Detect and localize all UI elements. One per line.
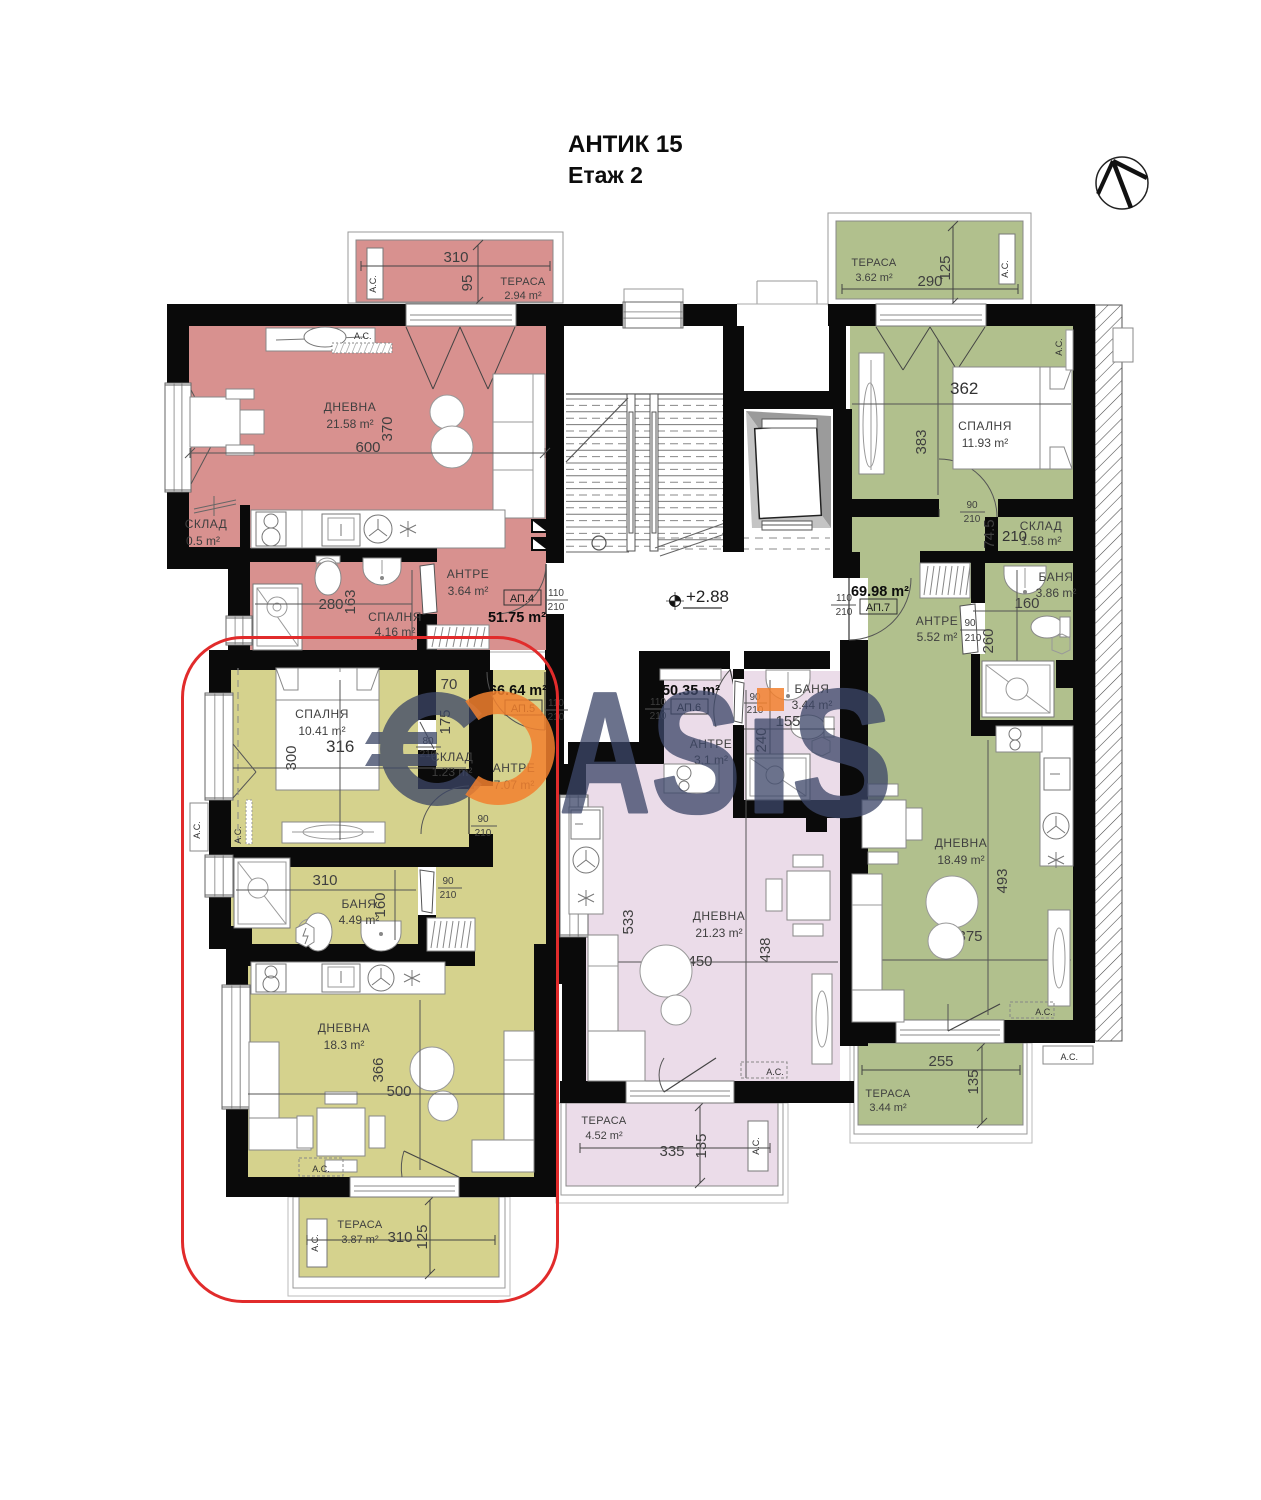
svg-text:500: 500 bbox=[386, 1083, 411, 1100]
svg-text:493: 493 bbox=[994, 868, 1011, 893]
svg-text:160: 160 bbox=[1014, 595, 1039, 612]
svg-text:ДНЕВНА: ДНЕВНА bbox=[318, 1021, 370, 1035]
svg-text:95: 95 bbox=[459, 275, 476, 292]
svg-text:3.62 m²: 3.62 m² bbox=[855, 272, 893, 284]
svg-text:А.С.: А.С. bbox=[192, 821, 202, 839]
svg-text:А.С.: А.С. bbox=[354, 331, 372, 341]
svg-text:ТЕРАСА: ТЕРАСА bbox=[500, 276, 545, 288]
svg-text:90: 90 bbox=[964, 618, 976, 629]
svg-text:0.5 m²: 0.5 m² bbox=[186, 534, 220, 548]
svg-text:АНТИК 15: АНТИК 15 bbox=[568, 131, 683, 158]
svg-text:210: 210 bbox=[964, 514, 981, 525]
svg-text:21.58 m²: 21.58 m² bbox=[326, 417, 373, 431]
svg-text:310: 310 bbox=[443, 249, 468, 266]
svg-text:АНТРЕ: АНТРЕ bbox=[447, 567, 490, 581]
svg-text:125: 125 bbox=[414, 1224, 431, 1249]
svg-text:210: 210 bbox=[475, 828, 492, 839]
svg-text:210: 210 bbox=[836, 607, 853, 618]
svg-text:110: 110 bbox=[548, 588, 564, 599]
svg-text:ТЕРАСА: ТЕРАСА bbox=[581, 1115, 626, 1127]
svg-text:А.С.: А.С. bbox=[766, 1067, 784, 1077]
svg-text:АП.7: АП.7 bbox=[866, 602, 890, 614]
svg-text:1.58 m²: 1.58 m² bbox=[1021, 534, 1062, 548]
svg-text:ТЕРАСА: ТЕРАСА bbox=[851, 257, 896, 269]
svg-text:СПАЛНЯ: СПАЛНЯ bbox=[958, 419, 1012, 433]
svg-text:S: S bbox=[792, 654, 893, 854]
svg-text:СПАЛНЯ: СПАЛНЯ bbox=[295, 707, 349, 721]
svg-text:600: 600 bbox=[355, 439, 380, 456]
svg-text:163: 163 bbox=[342, 589, 359, 614]
svg-text:310: 310 bbox=[312, 872, 337, 889]
svg-text:335: 335 bbox=[659, 1143, 684, 1160]
svg-text:74.5: 74.5 bbox=[981, 519, 998, 548]
svg-text:533: 533 bbox=[620, 909, 637, 934]
svg-text:70: 70 bbox=[441, 676, 458, 693]
svg-text:+2.88: +2.88 bbox=[686, 587, 729, 606]
svg-text:А.С.: А.С. bbox=[1060, 1052, 1078, 1062]
svg-text:ДНЕВНА: ДНЕВНА bbox=[324, 400, 376, 414]
svg-text:ТЕРАСА: ТЕРАСА bbox=[865, 1088, 910, 1100]
svg-text:370: 370 bbox=[379, 416, 396, 441]
svg-text:СПАЛНЯ: СПАЛНЯ bbox=[368, 610, 422, 624]
svg-text:300: 300 bbox=[283, 745, 300, 770]
svg-text:110: 110 bbox=[836, 593, 852, 604]
svg-text:СКЛАД: СКЛАД bbox=[185, 517, 228, 531]
svg-text:18.49 m²: 18.49 m² bbox=[937, 853, 984, 867]
svg-text:3.86 m²: 3.86 m² bbox=[1036, 586, 1077, 600]
svg-text:310: 310 bbox=[387, 1229, 412, 1246]
svg-text:3.87 m²: 3.87 m² bbox=[341, 1234, 379, 1246]
svg-text:362: 362 bbox=[950, 379, 978, 398]
svg-text:2.94 m²: 2.94 m² bbox=[504, 290, 542, 302]
svg-text:210: 210 bbox=[440, 890, 457, 901]
svg-text:А.С.: А.С. bbox=[1054, 338, 1064, 356]
svg-text:90: 90 bbox=[442, 876, 454, 887]
svg-text:А.С.: А.С. bbox=[233, 826, 243, 844]
svg-text:Етаж 2: Етаж 2 bbox=[568, 162, 643, 188]
svg-text:383: 383 bbox=[913, 429, 930, 454]
svg-text:51.75 m²: 51.75 m² bbox=[488, 610, 546, 626]
svg-text:3.44 m²: 3.44 m² bbox=[869, 1102, 907, 1114]
svg-text:255: 255 bbox=[928, 1053, 953, 1070]
svg-text:СКЛАД: СКЛАД bbox=[1020, 519, 1063, 533]
svg-text:А.С.: А.С. bbox=[310, 1234, 320, 1252]
svg-text:11.93 m²: 11.93 m² bbox=[962, 436, 1008, 450]
svg-text:5.52 m²: 5.52 m² bbox=[917, 630, 958, 644]
svg-text:A: A bbox=[560, 657, 651, 849]
svg-text:10.41 m²: 10.41 m² bbox=[298, 724, 345, 738]
svg-text:438: 438 bbox=[757, 937, 774, 962]
svg-text:СКЛАД: СКЛАД bbox=[431, 750, 474, 764]
svg-text:125: 125 bbox=[937, 255, 954, 280]
svg-text:90: 90 bbox=[477, 814, 489, 825]
svg-text:S: S bbox=[651, 656, 740, 849]
svg-text:ТЕРАСА: ТЕРАСА bbox=[337, 1219, 382, 1231]
svg-text:18.3 m²: 18.3 m² bbox=[324, 1038, 365, 1052]
svg-text:366: 366 bbox=[370, 1057, 387, 1082]
svg-text:260: 260 bbox=[980, 628, 997, 653]
svg-text:21.23 m²: 21.23 m² bbox=[695, 926, 742, 940]
svg-text:90: 90 bbox=[966, 500, 978, 511]
svg-text:А.С.: А.С. bbox=[751, 1137, 761, 1155]
svg-text:А.С.: А.С. bbox=[1035, 1007, 1053, 1017]
svg-text:135: 135 bbox=[965, 1069, 982, 1094]
svg-text:АНТРЕ: АНТРЕ bbox=[916, 614, 959, 628]
svg-text:АП.4: АП.4 bbox=[510, 593, 534, 605]
svg-text:210: 210 bbox=[548, 602, 565, 613]
svg-text:4.52 m²: 4.52 m² bbox=[585, 1130, 623, 1142]
svg-text:ДНЕВНА: ДНЕВНА bbox=[935, 836, 987, 850]
svg-text:ДНЕВНА: ДНЕВНА bbox=[693, 909, 745, 923]
svg-text:69.98 m²: 69.98 m² bbox=[851, 584, 909, 600]
svg-text:160: 160 bbox=[372, 892, 389, 917]
svg-text:135: 135 bbox=[693, 1133, 710, 1158]
svg-text:А.С.: А.С. bbox=[368, 275, 378, 293]
svg-text:3.64 m²: 3.64 m² bbox=[448, 584, 489, 598]
svg-text:БАНЯ: БАНЯ bbox=[1039, 570, 1074, 584]
svg-text:А.С.: А.С. bbox=[312, 1164, 330, 1174]
svg-text:А.С.: А.С. bbox=[1000, 260, 1010, 278]
